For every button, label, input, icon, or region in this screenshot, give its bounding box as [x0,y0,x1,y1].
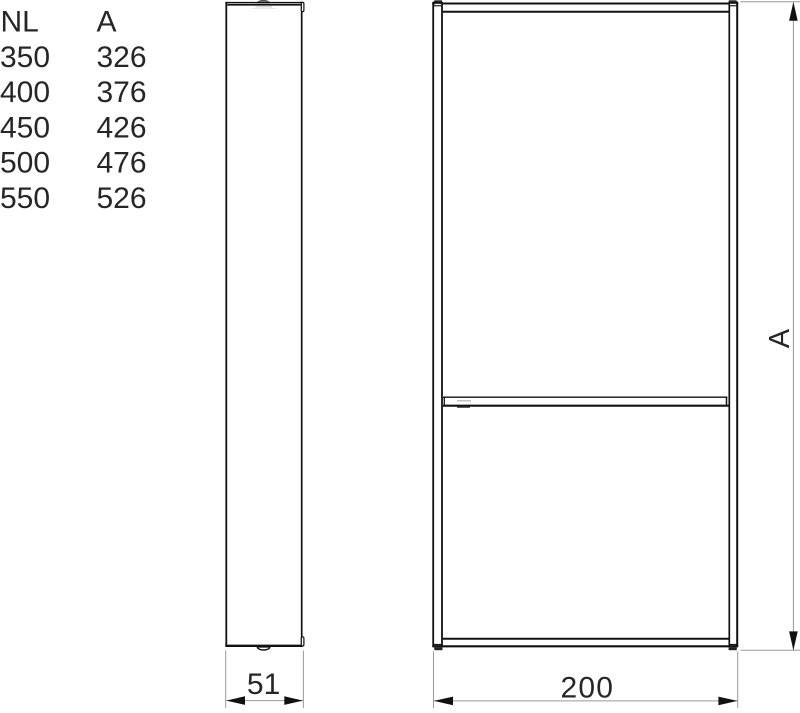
svg-text:NL: NL [1,6,39,39]
svg-text:A: A [764,328,796,348]
svg-text:526: 526 [97,182,147,215]
svg-text:326: 326 [97,41,147,74]
svg-text:426: 426 [97,111,147,144]
svg-text:200: 200 [560,672,614,705]
svg-text:450: 450 [0,111,50,144]
svg-text:550: 550 [0,182,50,215]
svg-text:500: 500 [0,147,50,180]
svg-text:A: A [97,6,117,39]
svg-text:376: 376 [97,76,147,109]
svg-text:350: 350 [0,41,50,74]
svg-text:51: 51 [247,668,280,701]
svg-text:400: 400 [0,76,50,109]
svg-text:476: 476 [97,147,147,180]
